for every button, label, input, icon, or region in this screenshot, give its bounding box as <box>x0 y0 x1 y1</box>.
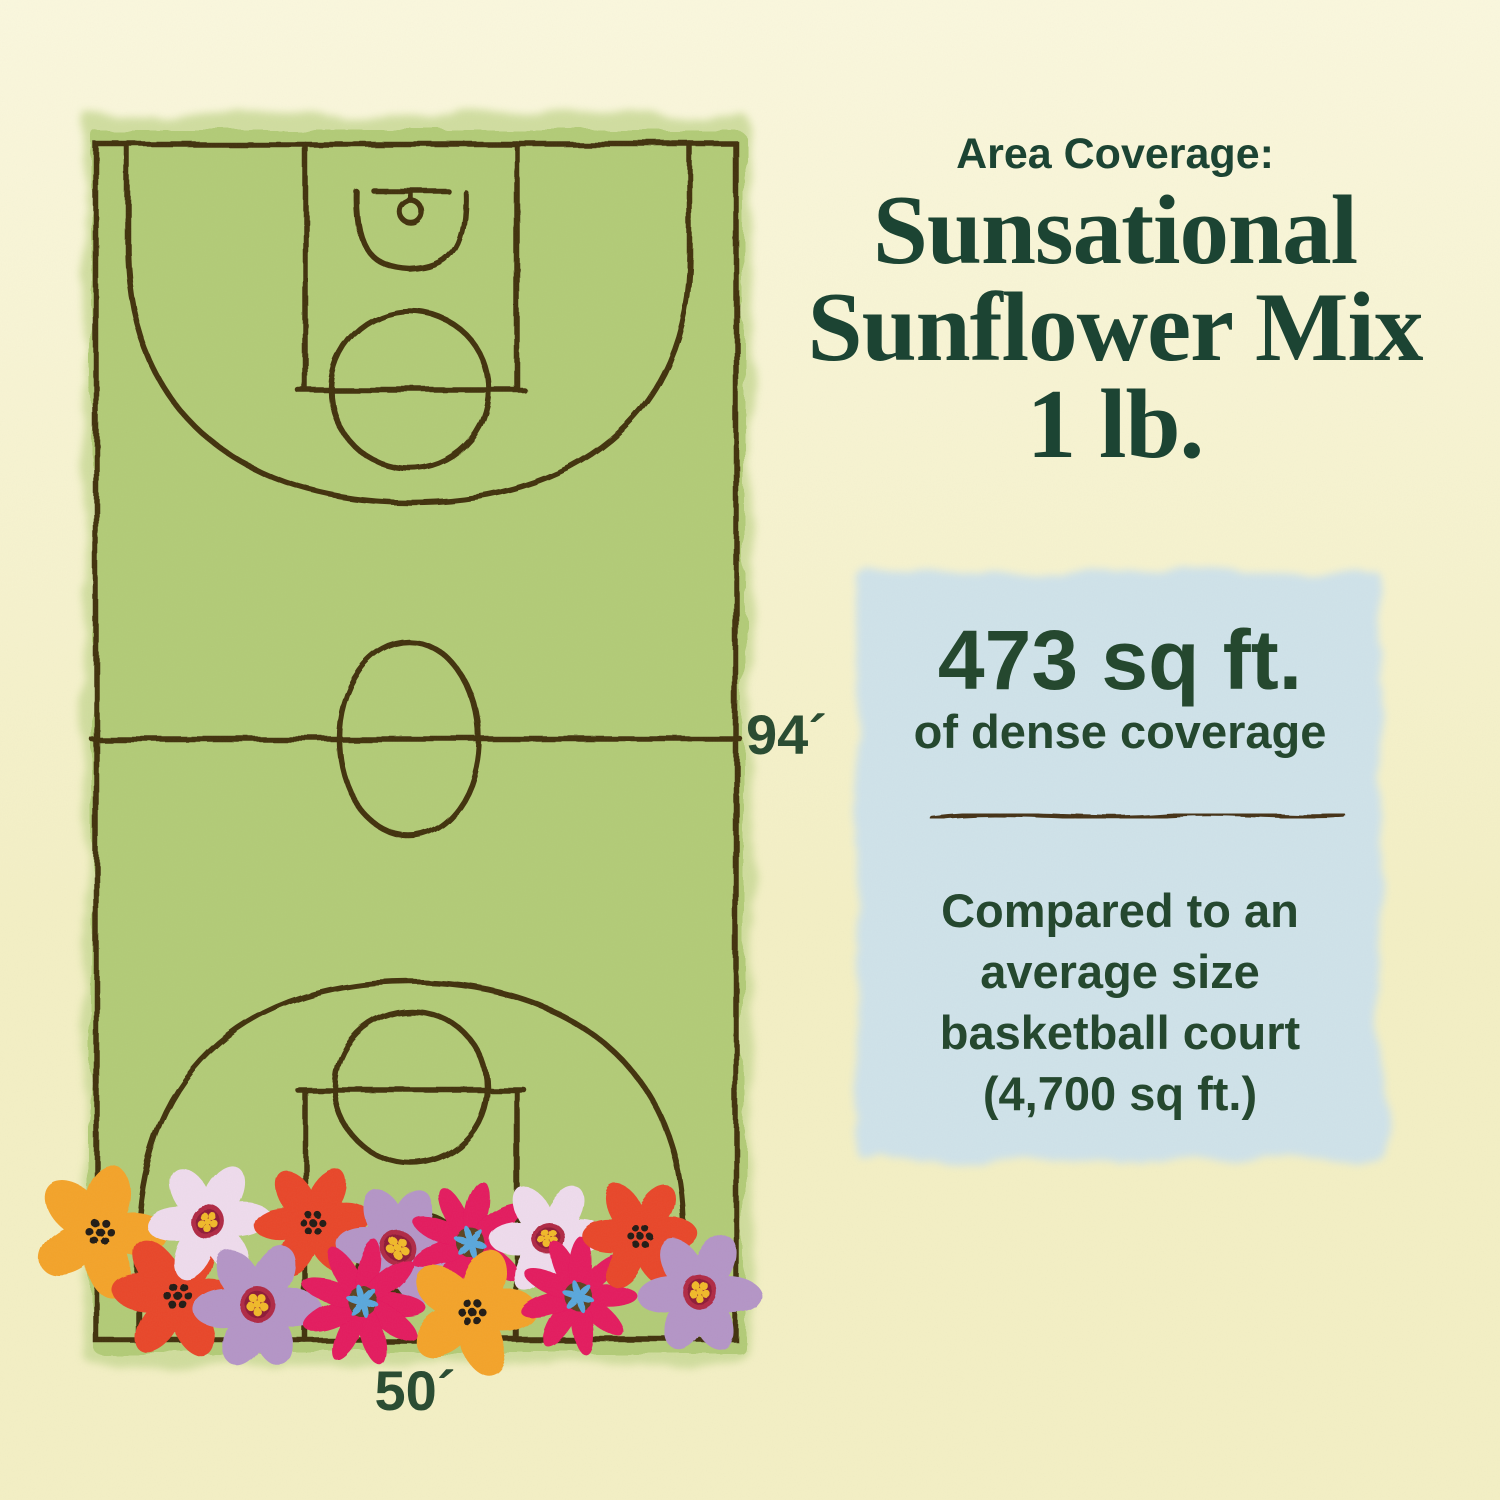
divider-line <box>932 814 1344 818</box>
coverage-subtitle: of dense coverage <box>858 708 1382 755</box>
flower-poppy-red <box>582 1178 698 1295</box>
court-lines <box>92 144 740 1340</box>
bottom-three-point-line <box>138 982 684 1340</box>
flowers-layer <box>30 1159 764 1381</box>
flower-daisy-lavender <box>334 1183 461 1312</box>
section-label: Area Coverage: <box>845 131 1385 178</box>
comparison-line-2: average size <box>858 941 1382 1002</box>
flower-poppy-red <box>252 1163 372 1283</box>
flower-daisy-lavender <box>636 1228 764 1357</box>
flower-poppy-red <box>110 1228 245 1364</box>
top-three-point-line <box>127 144 690 502</box>
flower-daisy-pink <box>489 1179 608 1298</box>
comparison-line-1: Compared to an <box>858 880 1382 941</box>
flower-poppy-orange <box>30 1161 169 1304</box>
bottom-free-throw-circle <box>335 1011 487 1163</box>
flower-cosmos-magenta <box>299 1237 428 1366</box>
flower-cosmos-magenta <box>408 1179 532 1304</box>
court-ground <box>92 130 744 1352</box>
bottom-restricted-arc <box>357 1212 465 1290</box>
product-title-line-1: Sunsational <box>873 182 1357 279</box>
comparison-line-3: basketball court <box>858 1002 1382 1063</box>
court-width-label: 50´ <box>330 1358 500 1423</box>
top-free-throw-circle <box>331 311 489 469</box>
court-boundary <box>96 144 736 1340</box>
court-length-label: 94´ <box>746 702 827 767</box>
bottom-hoop <box>400 1259 422 1281</box>
top-lane <box>298 144 524 390</box>
flower-daisy-lavender <box>192 1239 324 1372</box>
top-backboard <box>374 191 448 201</box>
comparison-text: Compared to an average size basketball c… <box>858 880 1382 1124</box>
court-ground-halo <box>84 116 752 1364</box>
center-circle <box>339 642 479 836</box>
bottom-lane <box>298 1090 524 1340</box>
flower-cosmos-magenta <box>518 1236 637 1356</box>
coverage-value: 473 sq ft. <box>858 618 1382 702</box>
seed-coverage-infographic: Area Coverage: Sunsational Sunflower Mix… <box>0 0 1500 1500</box>
top-restricted-arc <box>357 192 465 270</box>
bottom-backboard <box>374 1282 448 1292</box>
product-title-line-2: Sunflower Mix <box>808 279 1423 376</box>
top-hoop <box>400 201 422 223</box>
product-title-line-3: 1 lb. <box>1027 376 1204 473</box>
comparison-line-4: (4,700 sq ft.) <box>858 1063 1382 1124</box>
product-title: Sunsational Sunflower Mix 1 lb. <box>795 182 1435 473</box>
flower-daisy-pink <box>145 1159 271 1285</box>
